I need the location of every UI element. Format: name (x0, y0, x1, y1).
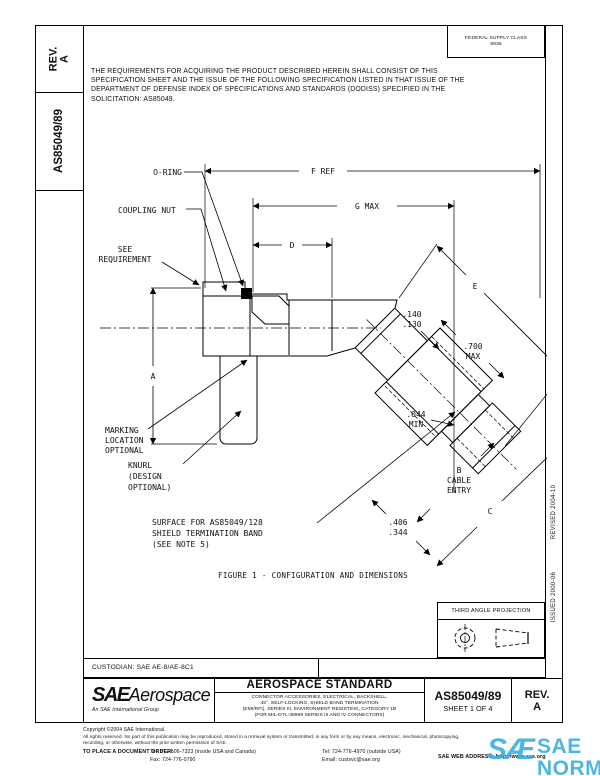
dim-cable: CABLE (447, 476, 471, 485)
rev-cell-label: REV. (525, 689, 550, 701)
sae-norm-text: SAE NORM (537, 736, 600, 776)
dim-b: B (457, 466, 462, 475)
requirements-line: SOLICITATION: AS85049. (91, 95, 464, 104)
tel-outside: Tel: 724-776-4970 (outside USA) (322, 749, 401, 755)
label-see: SEE (118, 245, 133, 254)
aerospace-logo: Aerospace (129, 685, 211, 705)
figure-1-drawing: O-RING COUPLING NUT SEE REQUIREMENT MARK… (85, 148, 547, 610)
fsc-line2: 5935 (490, 42, 501, 48)
label-location: LOCATION (105, 436, 144, 445)
title-block: SAEAerospace An SAE International Group … (83, 678, 563, 723)
label-knurl: KNURL (128, 461, 152, 470)
dim-f-ref: F REF (311, 167, 335, 176)
elbow-centerline (367, 320, 517, 470)
requirements-paragraph: THE REQUIREMENTS FOR ACQUIRING THE PRODU… (91, 67, 464, 104)
standard-title-cell: AEROSPACE STANDARD CONNECTOR ACCESSORIES… (215, 679, 424, 722)
extension-lines (151, 164, 547, 493)
dim-700: .700 (463, 342, 482, 351)
shell-interface-hatch (252, 296, 289, 324)
custodian-text: CUSTODIAN: SAE AE-8/AE-8C1 (83, 659, 545, 677)
requirements-line: SPECIFICATION SHEET AND THE ISSUE OF THE… (91, 76, 464, 85)
projection-label: THIRD ANGLE PROJECTION (438, 603, 544, 620)
rev-cell-value: A (533, 701, 541, 713)
tel-inside: Tel: 877-606-7323 (inside USA and Canada… (150, 749, 256, 755)
logo-subtitle: An SAE International Group (92, 707, 214, 713)
dim-344: .344 (388, 528, 407, 537)
standard-subtitle-line: (FOR MIL-DTL-38999 SERIES III AND IV CON… (215, 713, 423, 719)
label-optional: OPTIONAL (105, 446, 144, 455)
dim-entry: ENTRY (447, 486, 471, 495)
sae-logo: SAE (92, 684, 129, 706)
label-marking: MARKING (105, 426, 139, 435)
dim-e: E (473, 282, 478, 291)
dim-140: .140 (402, 310, 421, 319)
spec-sheet-page: REV. A AS85049/89 FEDERAL SUPPLY CLASS 5… (0, 0, 600, 776)
issued-date-vertical: ISSUED 2000-06 (548, 547, 560, 647)
doc-number: AS85049/89 (435, 689, 502, 703)
sae-watermark-mark: SÆ (487, 736, 533, 764)
rights-line-2: recording, or otherwise, without the pri… (83, 740, 227, 746)
standard-title: AEROSPACE STANDARD (215, 679, 423, 693)
label-oring: O-RING (153, 168, 182, 177)
knurl-grip (220, 356, 257, 444)
sae-norm-watermark: SÆ SAE NORM INTERNATIONAL STANDARDS (487, 736, 600, 776)
label-surface-3: (SEE NOTE 5) (152, 540, 210, 549)
elbow-45-group (334, 287, 547, 502)
sae-logo-cell: SAEAerospace An SAE International Group (84, 679, 215, 722)
doc-number-vertical: AS85049/89 (53, 109, 65, 173)
custodian-row: CUSTODIAN: SAE AE-8/AE-8C1 (83, 658, 545, 678)
dim-700-max: MAX (466, 352, 481, 361)
dim-406: .406 (388, 518, 407, 527)
fax-number: Fax: 724-776-0790 (150, 757, 196, 763)
rev-value: A (59, 46, 70, 71)
doc-number-cell: AS85049/89 SHEET 1 OF 4 (425, 679, 513, 722)
custodian-divider (318, 659, 319, 677)
figure-caption: FIGURE 1 - CONFIGURATION AND DIMENSIONS (218, 571, 408, 580)
dim-d: D (290, 241, 295, 250)
dim-a: A (151, 372, 156, 381)
label-surface-2: SHIELD TERMINATION BAND (152, 529, 263, 538)
doc-number-box: AS85049/89 (35, 92, 83, 191)
email-address: Email: custsvc@sae.org (322, 757, 380, 763)
label-requirement: REQUIREMENT (99, 255, 152, 264)
third-angle-projection-box: THIRD ANGLE PROJECTION (437, 602, 545, 658)
dim-044-min: MIN (409, 420, 424, 429)
requirements-line: DEPARTMENT OF DEFENSE INDEX OF SPECIFICA… (91, 85, 464, 94)
dim-c: C (488, 507, 493, 516)
label-knurl-design: (DESIGN (128, 472, 162, 481)
dim-130: .130 (402, 320, 421, 329)
coupling-nut-body (203, 296, 250, 356)
rev-cell: REV. A (512, 679, 562, 722)
fsc-box: FEDERAL SUPPLY CLASS 5935 (447, 25, 545, 58)
coupling-nut-group (203, 282, 397, 444)
requirements-line: THE REQUIREMENTS FOR ACQUIRING THE PRODU… (91, 67, 464, 76)
sheet-number: SHEET 1 OF 4 (443, 704, 492, 713)
label-knurl-optional: OPTIONAL) (128, 483, 171, 492)
dim-044: .044 (406, 410, 425, 419)
dim-g-max: G MAX (355, 202, 379, 211)
label-coupling-nut: COUPLING NUT (118, 206, 176, 215)
standard-subtitle-line: (EMI/RFI), SERIES III, ENVIRONMENT RESIS… (215, 707, 423, 713)
projection-symbol (438, 620, 544, 657)
copyright-line: Copyright ©2004 SAE International. (83, 727, 166, 733)
body-bottom-edge (250, 348, 355, 356)
label-surface-1: SURFACE FOR AS85049/128 (152, 518, 263, 527)
rev-label: REV. (48, 46, 59, 71)
rev-box: REV. A (35, 25, 83, 93)
leader-lines (148, 172, 455, 523)
